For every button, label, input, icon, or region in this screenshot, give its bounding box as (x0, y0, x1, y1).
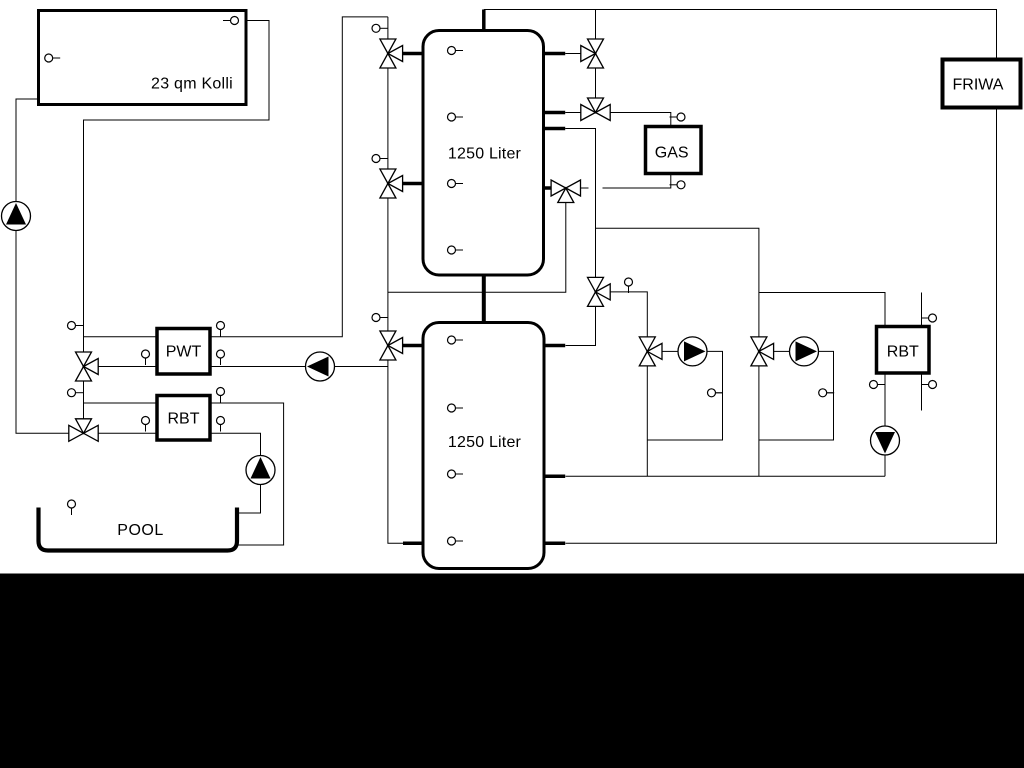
svg-text:POOL: POOL (117, 522, 163, 539)
svg-text:RBT: RBT (887, 343, 919, 360)
svg-text:GAS: GAS (655, 145, 689, 162)
svg-text:1250 Liter: 1250 Liter (448, 434, 522, 451)
svg-text:23 qm Kolli: 23 qm Kolli (151, 76, 233, 93)
svg-text:RBT: RBT (168, 411, 200, 428)
svg-text:1250 Liter: 1250 Liter (448, 146, 522, 163)
svg-text:PWT: PWT (166, 344, 202, 361)
svg-text:FRIWA: FRIWA (953, 77, 1004, 94)
